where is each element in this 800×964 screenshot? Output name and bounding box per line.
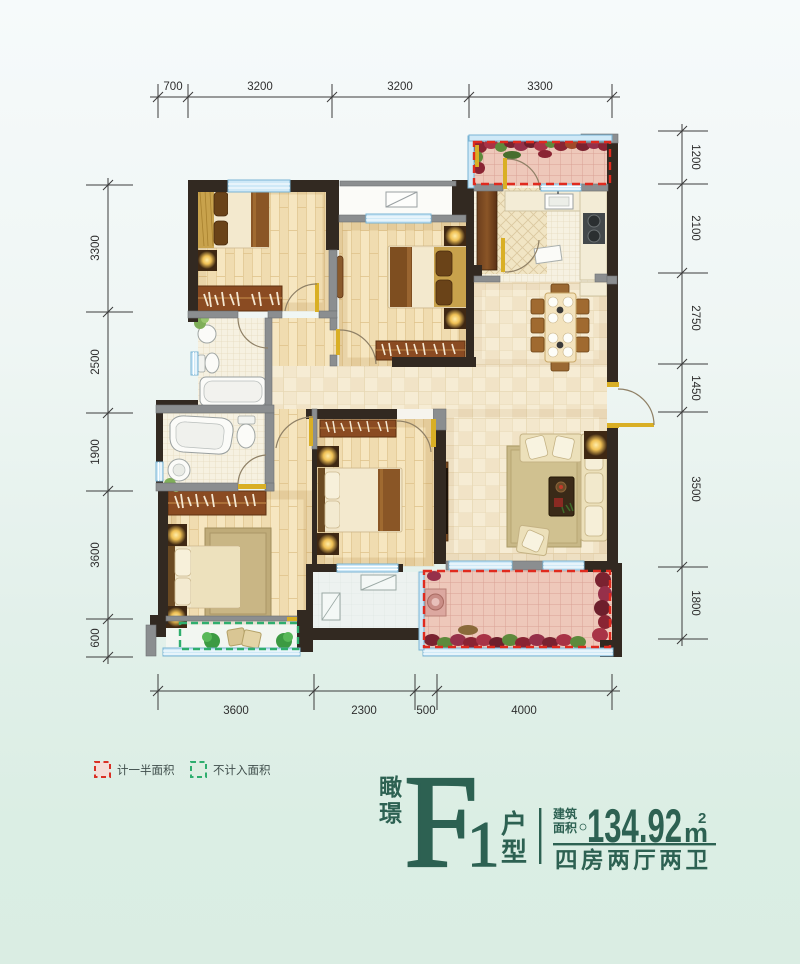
svg-text:4000: 4000 <box>511 705 537 717</box>
svg-text:700: 700 <box>163 81 182 93</box>
svg-text:3200: 3200 <box>247 81 273 93</box>
svg-text:计一半面积: 计一半面积 <box>117 763 175 777</box>
svg-text:3200: 3200 <box>387 81 413 93</box>
svg-text:600: 600 <box>90 628 102 647</box>
svg-text:建筑: 建筑 <box>552 806 577 821</box>
svg-text:1: 1 <box>467 809 500 881</box>
svg-text:3300: 3300 <box>90 235 102 261</box>
svg-text:璟: 璟 <box>379 800 402 826</box>
svg-text:3600: 3600 <box>90 542 102 568</box>
svg-text:户: 户 <box>501 809 527 839</box>
svg-text:3300: 3300 <box>527 81 553 93</box>
svg-text:2300: 2300 <box>351 705 377 717</box>
svg-text:2750: 2750 <box>689 305 701 331</box>
svg-text:型: 型 <box>501 837 527 867</box>
svg-text:2100: 2100 <box>689 215 701 241</box>
svg-text:1450: 1450 <box>689 375 701 401</box>
svg-text:瞰: 瞰 <box>379 774 402 800</box>
svg-text:四房两厅两卫: 四房两厅两卫 <box>555 847 712 873</box>
svg-text:1200: 1200 <box>689 144 701 170</box>
svg-text:3500: 3500 <box>689 476 701 502</box>
svg-text:3600: 3600 <box>223 705 249 717</box>
svg-text:1800: 1800 <box>689 590 701 616</box>
svg-text:1900: 1900 <box>90 439 102 465</box>
svg-text:2: 2 <box>698 810 706 827</box>
svg-text:不计入面积: 不计入面积 <box>213 764 271 777</box>
svg-text:2500: 2500 <box>90 349 102 375</box>
svg-text:面积: 面积 <box>553 820 577 835</box>
svg-text:500: 500 <box>416 705 435 717</box>
